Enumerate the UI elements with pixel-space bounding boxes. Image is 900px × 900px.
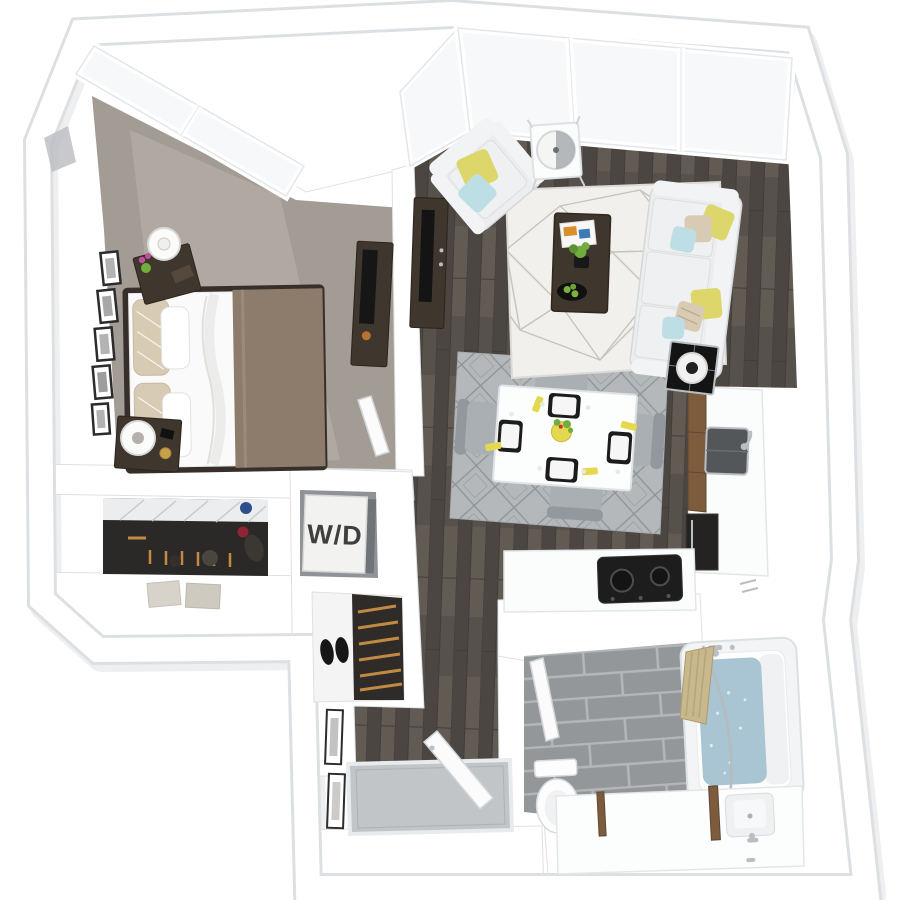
dining-area [450, 348, 668, 534]
door-handle [430, 746, 435, 751]
entry-closet [312, 592, 404, 702]
bathroom [524, 637, 804, 874]
table-lamp-bottom-center [132, 432, 144, 444]
washer-dryer-label: W/D [307, 519, 363, 551]
coffee-table [551, 213, 610, 313]
floor-plan-page: W/D [0, 0, 900, 900]
table-lamp-top-center [158, 238, 170, 250]
floor-plan-canvas: W/D [0, 0, 900, 900]
side-table [665, 341, 718, 394]
magazine [560, 220, 596, 247]
kitchen-sink [705, 427, 751, 475]
dining-table [482, 385, 639, 491]
vanity [556, 786, 804, 874]
washer-dryer-closet: W/D [300, 490, 378, 578]
counter-accessories [740, 580, 758, 592]
drum-lamp [537, 131, 575, 169]
wood-cabinet-fronts [688, 392, 706, 512]
cooktop [597, 555, 683, 604]
media-console [410, 197, 449, 328]
bedroom-dresser [351, 241, 393, 367]
